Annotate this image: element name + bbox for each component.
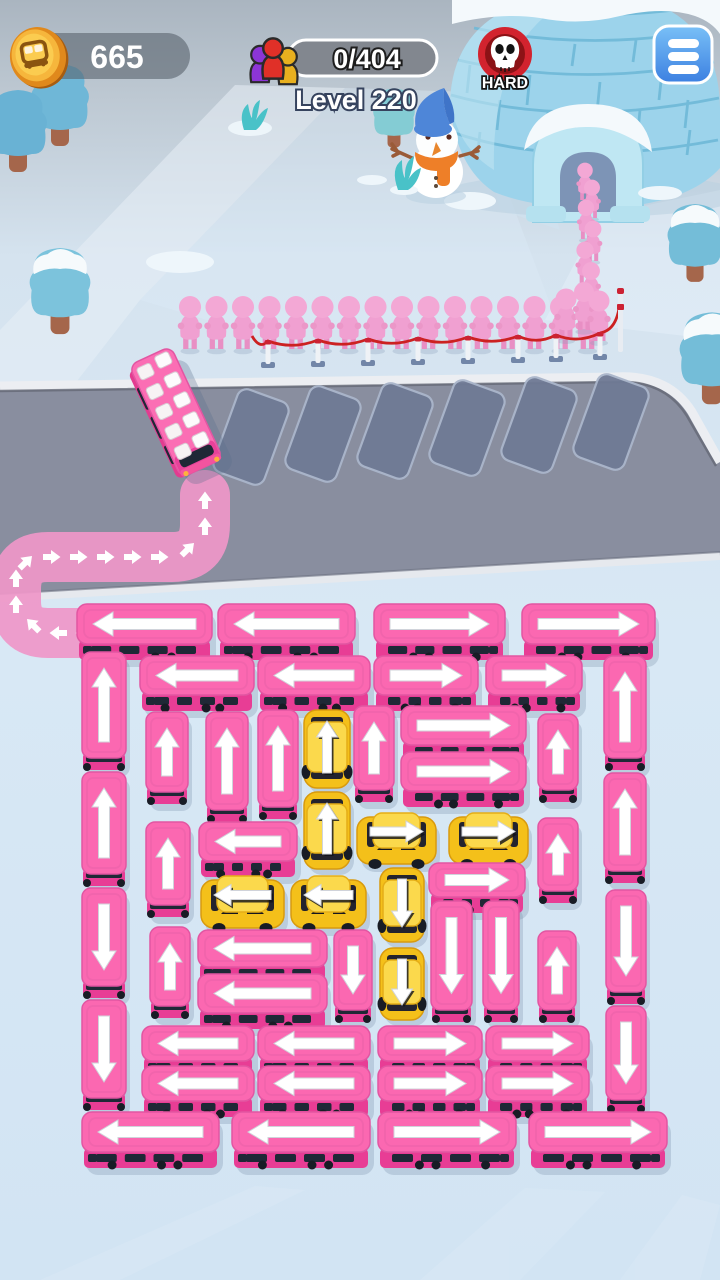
svg-text:HARD: HARD xyxy=(482,75,528,92)
svg-text:0/404: 0/404 xyxy=(333,44,401,74)
svg-text:Level 220: Level 220 xyxy=(295,85,417,115)
svg-text:665: 665 xyxy=(90,39,143,75)
